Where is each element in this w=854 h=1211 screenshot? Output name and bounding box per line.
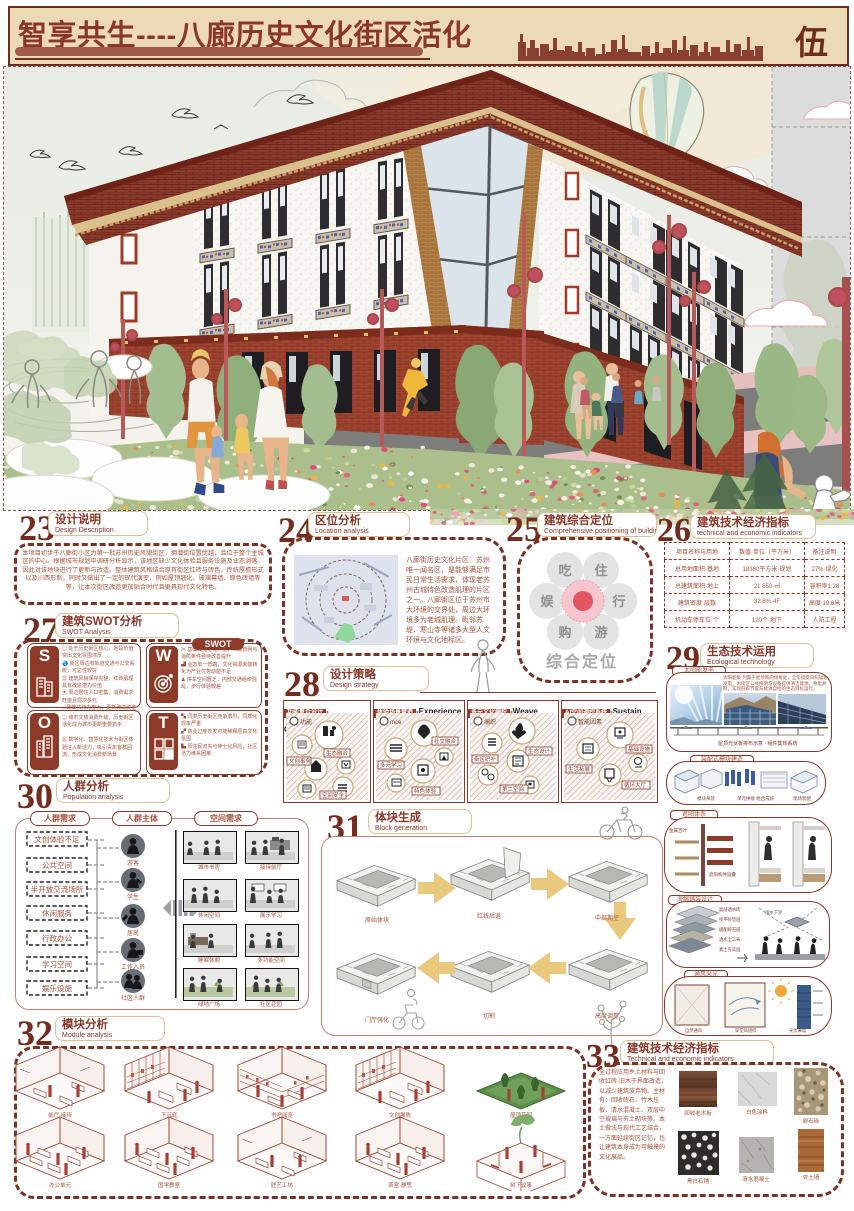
svg-text:卵石砾: 卵石砾 (803, 1117, 820, 1125)
svg-text:行政办公: 行政办公 (42, 933, 72, 943)
svg-text:金属百叶: 金属百叶 (669, 827, 687, 834)
svg-text:中部掏空: 中部掏空 (595, 914, 619, 922)
svg-text:回收老木板: 回收老木板 (684, 1109, 712, 1117)
svg-text:循环大厅: 循环大厅 (624, 781, 647, 789)
svg-text:休闲服务: 休闲服务 (42, 908, 72, 918)
svg-text:生态融合: 生态融合 (326, 749, 349, 757)
svg-text:切割: 切割 (483, 1012, 495, 1020)
svg-text:遮阳构件层叠: 遮阳构件层叠 (709, 871, 736, 878)
svg-text:生态设计: 生态设计 (528, 747, 551, 755)
svg-text:游客: 游客 (127, 859, 139, 867)
svg-text:空间安全: 空间安全 (322, 791, 345, 799)
svg-text:夯土墙: 夯土墙 (803, 1173, 820, 1181)
svg-text:街区织补: 街区织补 (474, 755, 497, 763)
svg-text:穿堂风组织: 穿堂风组织 (735, 1027, 757, 1034)
svg-text:学生: 学生 (127, 893, 139, 901)
svg-text:基础设施: 基础设施 (628, 745, 651, 753)
svg-text:屋顶光伏板排布示意 · 组件集热系统: 屋顶光伏板排布示意 · 组件集热系统 (718, 740, 797, 747)
svg-text:原始体块: 原始体块 (365, 916, 389, 924)
svg-text:社交融合: 社交融合 (434, 737, 457, 745)
svg-text:行: 行 (611, 594, 625, 609)
svg-text:透水土工布: 透水土工布 (719, 936, 741, 943)
svg-text:吃: 吃 (558, 563, 571, 578)
svg-text:光伏幕墙: 光伏幕墙 (789, 1027, 807, 1034)
svg-text:自然通风: 自然通风 (685, 1027, 703, 1034)
svg-text:娱乐设施: 娱乐设施 (42, 983, 72, 993)
svg-text:素土夯实层: 素土夯实层 (719, 946, 741, 953)
svg-text:雨水下渗: 雨水下渗 (765, 909, 783, 916)
svg-text:学习空间: 学习空间 (42, 959, 72, 969)
svg-text:面层透水砖: 面层透水砖 (719, 906, 741, 913)
svg-text:社区人群: 社区人群 (121, 994, 145, 1002)
svg-text:住: 住 (594, 563, 607, 578)
svg-text:编织: 编织 (484, 718, 496, 726)
svg-text:多元学习: 多元学习 (380, 761, 402, 769)
svg-text:购: 购 (558, 625, 571, 640)
svg-text:公共空间: 公共空间 (42, 860, 72, 870)
svg-text:白色涂料: 白色涂料 (746, 1108, 769, 1116)
svg-text:生活拓展: 生活拓展 (568, 765, 591, 773)
svg-text:特色体验: 特色体验 (414, 787, 437, 795)
svg-text:娱: 娱 (540, 594, 554, 609)
svg-text:级配碎石层: 级配碎石层 (719, 926, 741, 933)
svg-text:红线后退: 红线后退 (477, 912, 501, 920)
svg-text:找平砂垫层: 找平砂垫层 (719, 916, 741, 923)
svg-text:游: 游 (594, 625, 607, 640)
svg-text:半开放交流场所: 半开放交流场所 (31, 884, 84, 894)
svg-text:单元拼接 组合成栋: 单元拼接 组合成栋 (737, 795, 775, 802)
svg-text:工作人员: 工作人员 (121, 963, 145, 971)
svg-text:综合定位: 综合定位 (546, 652, 618, 671)
svg-text:清水混凝土: 清水混凝土 (742, 1175, 770, 1183)
svg-text:黑白石铺: 黑白石铺 (687, 1177, 710, 1185)
svg-text:模块吊装: 模块吊装 (697, 795, 715, 802)
svg-text:文创体验不足: 文创体验不足 (35, 834, 80, 844)
svg-text:mce: mce (390, 720, 402, 726)
svg-text:智能因素: 智能因素 (578, 718, 602, 726)
svg-text:现场装配: 现场装配 (793, 795, 811, 802)
svg-text:功能: 功能 (300, 718, 312, 726)
svg-text:文创事务: 文创事务 (289, 757, 312, 765)
svg-text:门厅强化: 门厅强化 (365, 1016, 389, 1024)
svg-text:第二空间: 第二空间 (502, 785, 524, 793)
svg-text:居民: 居民 (127, 930, 139, 937)
